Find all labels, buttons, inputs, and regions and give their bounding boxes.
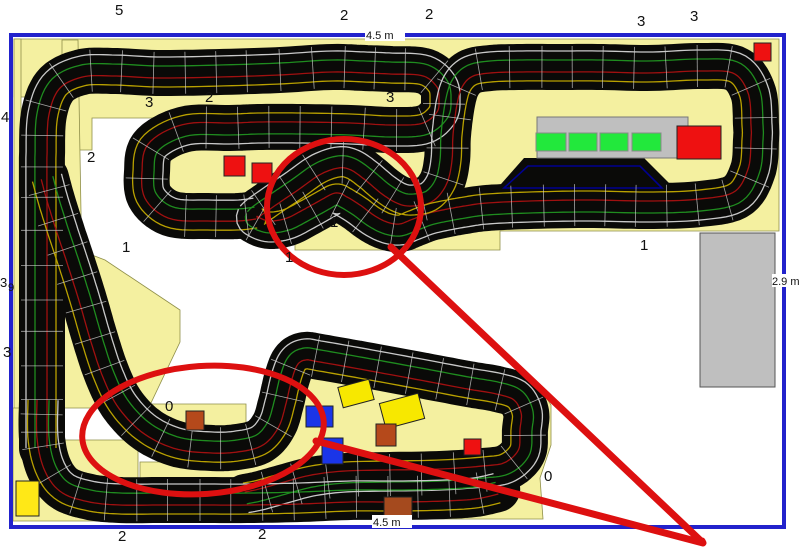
svg-text:2.9 m: 2.9 m: [772, 276, 800, 288]
svg-text:3: 3: [145, 94, 153, 111]
svg-text:5: 5: [115, 2, 123, 19]
svg-text:3: 3: [386, 89, 394, 106]
svg-text:0: 0: [544, 468, 552, 485]
svg-text:2: 2: [87, 149, 95, 166]
svg-text:4: 4: [1, 109, 9, 126]
svg-text:4.5 m: 4.5 m: [366, 30, 394, 42]
svg-text:2: 2: [340, 7, 348, 24]
svg-text:2: 2: [118, 528, 126, 545]
svg-text:3: 3: [637, 13, 645, 30]
svg-text:1: 1: [122, 239, 130, 256]
svg-text:2: 2: [205, 89, 213, 106]
svg-text:9: 9: [8, 282, 14, 294]
svg-text:2: 2: [425, 6, 433, 23]
svg-text:3: 3: [3, 344, 11, 361]
svg-text:0: 0: [165, 398, 173, 415]
svg-text:1: 1: [640, 237, 648, 254]
svg-text:2: 2: [258, 526, 266, 543]
svg-text:3: 3: [0, 275, 7, 290]
svg-text:1: 1: [330, 214, 338, 231]
svg-text:3: 3: [690, 8, 698, 25]
svg-text:4.5 m: 4.5 m: [373, 517, 401, 529]
svg-text:1: 1: [285, 249, 293, 266]
